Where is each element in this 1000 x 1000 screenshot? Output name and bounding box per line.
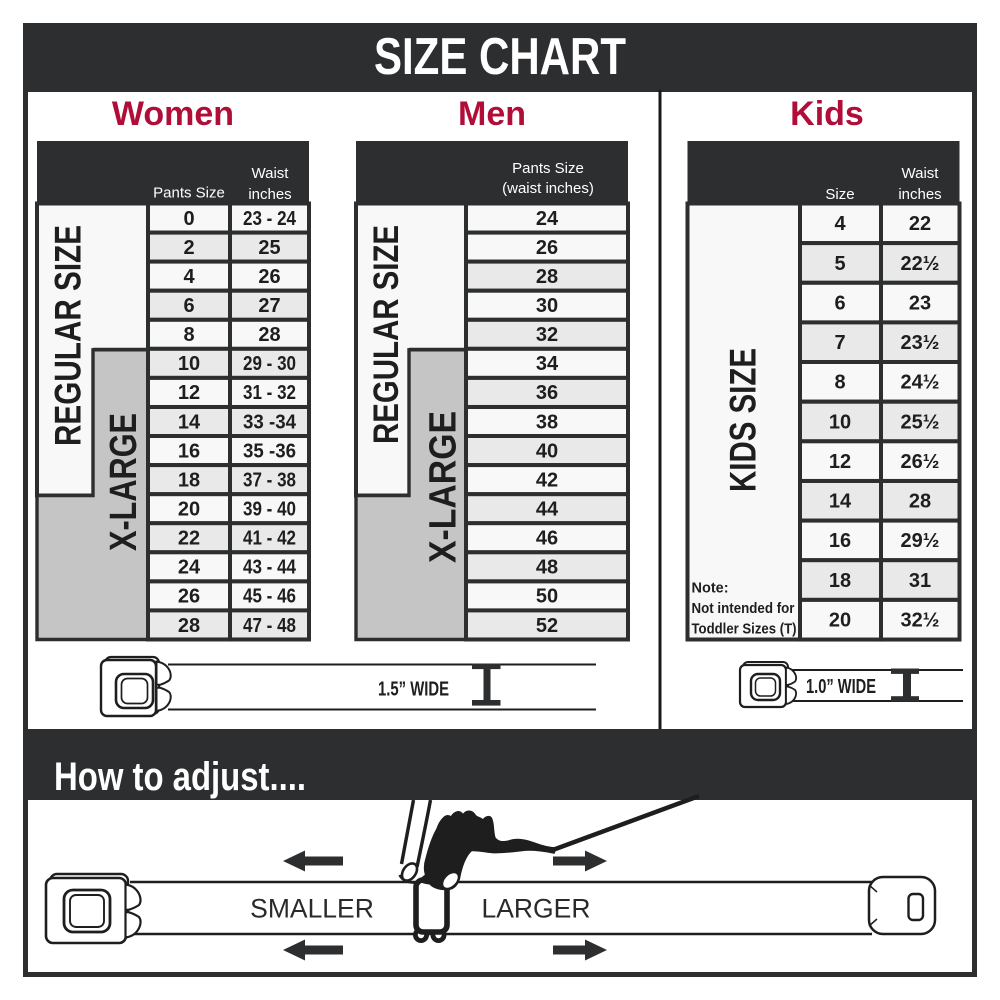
svg-text:42: 42 — [536, 469, 558, 491]
svg-text:(waist inches): (waist inches) — [502, 180, 594, 197]
svg-text:28: 28 — [178, 615, 200, 637]
svg-text:45 - 46: 45 - 46 — [243, 586, 296, 608]
svg-text:32½: 32½ — [901, 610, 940, 632]
svg-text:How to adjust....: How to adjust.... — [54, 755, 306, 799]
svg-text:14: 14 — [829, 491, 852, 513]
svg-text:14: 14 — [178, 411, 201, 433]
svg-text:26: 26 — [258, 266, 280, 288]
svg-text:30: 30 — [536, 295, 558, 317]
svg-text:44: 44 — [536, 499, 559, 521]
svg-text:29½: 29½ — [901, 530, 940, 552]
svg-text:Men: Men — [458, 95, 526, 133]
svg-text:20: 20 — [178, 499, 200, 521]
svg-text:50: 50 — [536, 586, 558, 608]
svg-text:REGULAR SIZE: REGULAR SIZE — [367, 225, 406, 444]
svg-text:12: 12 — [178, 382, 200, 404]
svg-text:12: 12 — [829, 451, 851, 473]
svg-text:REGULAR SIZE: REGULAR SIZE — [48, 225, 89, 446]
svg-text:18: 18 — [178, 469, 200, 491]
svg-text:7: 7 — [834, 332, 845, 354]
svg-text:26: 26 — [178, 586, 200, 608]
svg-text:32: 32 — [536, 324, 558, 346]
svg-text:31 - 32: 31 - 32 — [243, 382, 296, 404]
svg-text:SIZE CHART: SIZE CHART — [374, 28, 626, 86]
svg-text:29 - 30: 29 - 30 — [243, 353, 296, 375]
svg-text:23½: 23½ — [901, 332, 940, 354]
svg-text:4: 4 — [183, 266, 195, 288]
svg-text:39 - 40: 39 - 40 — [243, 499, 296, 521]
svg-text:47 - 48: 47 - 48 — [243, 615, 296, 637]
svg-text:22: 22 — [909, 213, 931, 235]
svg-text:28: 28 — [536, 266, 558, 288]
svg-text:41 - 42: 41 - 42 — [243, 528, 296, 550]
svg-text:35 -36: 35 -36 — [243, 440, 296, 462]
svg-text:10: 10 — [178, 353, 200, 375]
svg-text:Pants Size: Pants Size — [153, 185, 225, 202]
svg-text:10: 10 — [829, 411, 851, 433]
svg-text:6: 6 — [183, 295, 194, 317]
svg-text:28: 28 — [258, 324, 280, 346]
svg-text:KIDS SIZE: KIDS SIZE — [723, 348, 764, 492]
svg-text:22: 22 — [178, 528, 200, 550]
svg-text:38: 38 — [536, 411, 558, 433]
svg-text:46: 46 — [536, 528, 558, 550]
svg-text:Pants Size: Pants Size — [512, 160, 584, 177]
svg-text:0: 0 — [183, 208, 194, 230]
svg-text:18: 18 — [829, 570, 851, 592]
svg-text:1.0” WIDE: 1.0” WIDE — [806, 676, 876, 698]
svg-text:34: 34 — [536, 353, 559, 375]
svg-text:20: 20 — [829, 610, 851, 632]
svg-text:2: 2 — [183, 237, 194, 259]
svg-text:inches: inches — [248, 186, 291, 203]
svg-text:24: 24 — [536, 208, 559, 230]
svg-text:8: 8 — [834, 372, 845, 394]
svg-text:4: 4 — [834, 213, 846, 235]
svg-text:48: 48 — [536, 557, 558, 579]
svg-text:8: 8 — [183, 324, 194, 346]
svg-text:27: 27 — [258, 295, 280, 317]
svg-text:Women: Women — [112, 95, 234, 133]
svg-text:6: 6 — [834, 292, 845, 314]
svg-text:26½: 26½ — [901, 451, 940, 473]
svg-text:Note:: Note: — [692, 581, 729, 597]
svg-text:36: 36 — [536, 382, 558, 404]
svg-text:26: 26 — [536, 237, 558, 259]
svg-text:1.5” WIDE: 1.5” WIDE — [378, 679, 449, 701]
svg-text:31: 31 — [909, 570, 931, 592]
svg-text:SMALLER: SMALLER — [250, 894, 374, 924]
svg-text:5: 5 — [834, 253, 845, 275]
svg-text:24½: 24½ — [901, 372, 940, 394]
svg-text:40: 40 — [536, 440, 558, 462]
svg-text:16: 16 — [829, 530, 851, 552]
svg-text:Not intended for: Not intended for — [692, 601, 795, 617]
svg-text:X-LARGE: X-LARGE — [423, 411, 465, 563]
svg-text:43 - 44: 43 - 44 — [243, 557, 297, 579]
svg-text:24: 24 — [178, 557, 201, 579]
svg-text:52: 52 — [536, 615, 558, 637]
svg-text:LARGER: LARGER — [482, 894, 591, 924]
svg-text:Kids: Kids — [790, 95, 864, 133]
svg-text:28: 28 — [909, 491, 931, 513]
svg-text:33 -34: 33 -34 — [243, 411, 297, 433]
svg-text:Toddler Sizes (T): Toddler Sizes (T) — [692, 622, 797, 638]
svg-text:23 - 24: 23 - 24 — [243, 208, 297, 230]
svg-text:Waist: Waist — [252, 165, 290, 182]
svg-text:22½: 22½ — [901, 253, 940, 275]
svg-text:25: 25 — [258, 237, 280, 259]
svg-text:37 - 38: 37 - 38 — [243, 469, 296, 491]
svg-text:16: 16 — [178, 440, 200, 462]
svg-text:Waist: Waist — [902, 165, 940, 182]
svg-text:inches: inches — [898, 186, 941, 203]
svg-text:Size: Size — [825, 186, 854, 203]
svg-text:X-LARGE: X-LARGE — [103, 413, 145, 551]
svg-text:23: 23 — [909, 292, 931, 314]
svg-text:25½: 25½ — [901, 411, 940, 433]
